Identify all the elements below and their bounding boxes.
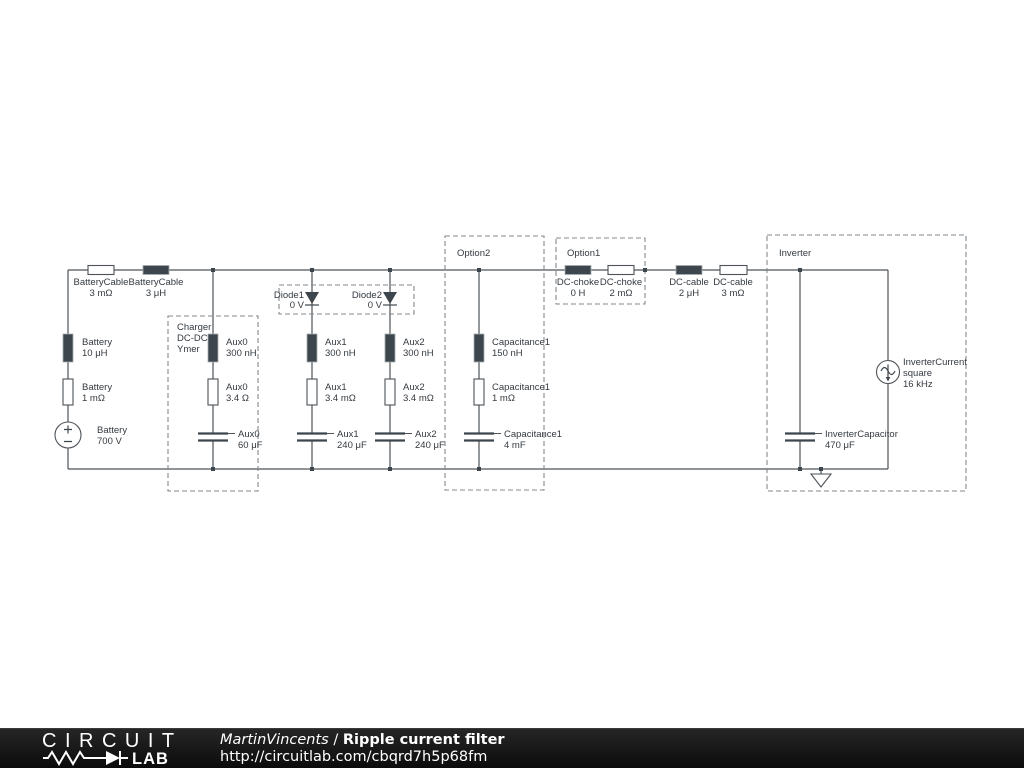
svg-text:3.4 mΩ: 3.4 mΩ: [325, 393, 356, 404]
svg-text:10 μH: 10 μH: [82, 348, 108, 359]
svg-text:300 nH: 300 nH: [325, 348, 356, 359]
svg-text:Aux2: Aux2: [403, 337, 425, 348]
footer-circuit-title: Ripple current filter: [343, 732, 505, 748]
svg-text:Battery: Battery: [97, 425, 127, 436]
svg-text:0 V: 0 V: [290, 300, 305, 311]
diode-symbol[interactable]: [383, 292, 397, 304]
svg-text:BatteryCable: BatteryCable: [74, 277, 129, 288]
inductor-battery[interactable]: Battery 10 μH: [63, 334, 112, 362]
svg-text:16 kHz: 16 kHz: [903, 379, 933, 390]
resistor-battery[interactable]: Battery 1 mΩ: [63, 379, 112, 405]
capacitor-aux2[interactable]: Aux2 240 μF: [375, 429, 445, 451]
svg-text:0 V: 0 V: [368, 300, 383, 311]
svg-text:1 mΩ: 1 mΩ: [492, 393, 515, 404]
resistor-symbol[interactable]: [208, 379, 218, 405]
inductor-aux0[interactable]: Aux0 300 nH: [208, 334, 257, 362]
svg-text:DC-choke: DC-choke: [557, 277, 599, 288]
inductor-symbol[interactable]: [63, 334, 73, 362]
svg-text:DC-choke: DC-choke: [600, 277, 642, 288]
inductor-symbol[interactable]: [676, 266, 702, 275]
wires: [68, 270, 888, 474]
ground-icon[interactable]: [811, 474, 831, 487]
option2-group-label: Option2: [457, 248, 490, 259]
svg-text:Aux1: Aux1: [325, 382, 347, 393]
svg-text:4 mF: 4 mF: [504, 440, 526, 451]
svg-text:3 mΩ: 3 mΩ: [90, 288, 113, 299]
svg-text:Aux0: Aux0: [226, 337, 248, 348]
footer-title-line: MartinVincents / Ripple current filter: [220, 732, 505, 749]
svg-text:3 μH: 3 μH: [146, 288, 166, 299]
resistor-symbol[interactable]: [608, 266, 634, 275]
capacitor-symbol[interactable]: [297, 434, 327, 441]
voltage-source-battery[interactable]: Battery 700 V: [55, 422, 127, 448]
svg-text:InverterCapacitor: InverterCapacitor: [825, 429, 898, 440]
resistor-symbol[interactable]: [474, 379, 484, 405]
capacitor-symbol[interactable]: [375, 434, 405, 441]
option1-group-label: Option1: [567, 248, 600, 259]
capacitor-symbol[interactable]: [785, 434, 815, 441]
svg-text:BatteryCable: BatteryCable: [129, 277, 184, 288]
svg-text:470 μF: 470 μF: [825, 440, 855, 451]
inductor-symbol[interactable]: [143, 266, 169, 275]
svg-text:0 H: 0 H: [571, 288, 586, 299]
inductor-symbol[interactable]: [385, 334, 395, 362]
svg-text:Aux2: Aux2: [403, 382, 425, 393]
resistor-symbol[interactable]: [88, 266, 114, 275]
resistor-aux0[interactable]: Aux0 3.4 Ω: [208, 379, 249, 405]
svg-text:Aux1: Aux1: [337, 429, 359, 440]
diode-symbol[interactable]: [305, 292, 319, 304]
svg-text:Capacitance1: Capacitance1: [492, 337, 550, 348]
svg-text:DC-cable: DC-cable: [713, 277, 753, 288]
circuitlab-logo[interactable]: CIRCUIT LAB: [42, 731, 192, 767]
svg-text:InverterCurrent: InverterCurrent: [903, 357, 967, 368]
svg-text:240 μF: 240 μF: [415, 440, 445, 451]
svg-text:3 mΩ: 3 mΩ: [722, 288, 745, 299]
logo-text-lab: LAB: [132, 750, 169, 767]
capacitor-inverter[interactable]: InverterCapacitor 470 μF: [785, 429, 898, 451]
ground-symbol[interactable]: [811, 474, 831, 487]
resistor-symbol[interactable]: [307, 379, 317, 405]
svg-text:2 μH: 2 μH: [679, 288, 699, 299]
svg-text:Battery: Battery: [82, 382, 112, 393]
capacitor-symbol[interactable]: [198, 434, 228, 441]
capacitor-aux0[interactable]: Aux0 60 μF: [198, 429, 263, 451]
logo-text-circuit: CIRCUIT: [42, 731, 183, 752]
resistor-aux1[interactable]: Aux1 3.4 mΩ: [307, 379, 356, 405]
inductor-symbol[interactable]: [307, 334, 317, 362]
circuit-schematic: Charger DC-DC Ymer Option2 Option1 Inver…: [0, 0, 1024, 728]
capacitor-aux1[interactable]: Aux1 240 μF: [297, 429, 367, 451]
footer-url[interactable]: http://circuitlab.com/cbqrd7h5p68fm: [220, 749, 505, 766]
svg-text:Aux0: Aux0: [238, 429, 260, 440]
svg-text:Capacitance1: Capacitance1: [504, 429, 562, 440]
svg-text:square: square: [903, 368, 932, 379]
svg-text:700 V: 700 V: [97, 436, 122, 447]
svg-text:1 mΩ: 1 mΩ: [82, 393, 105, 404]
svg-text:Aux1: Aux1: [325, 337, 347, 348]
svg-text:Ymer: Ymer: [177, 344, 200, 355]
resistor-symbol[interactable]: [720, 266, 747, 275]
current-source-inverter[interactable]: InverterCurrent square 16 kHz: [877, 357, 968, 390]
inductor-symbol[interactable]: [474, 334, 484, 362]
svg-text:Aux0: Aux0: [226, 382, 248, 393]
svg-text:2 mΩ: 2 mΩ: [610, 288, 633, 299]
inductor-capacitance1[interactable]: Capacitance1 150 nH: [474, 334, 550, 362]
resistor-aux2[interactable]: Aux2 3.4 mΩ: [385, 379, 434, 405]
svg-text:Aux2: Aux2: [415, 429, 437, 440]
svg-text:3.4 mΩ: 3.4 mΩ: [403, 393, 434, 404]
svg-text:150 nH: 150 nH: [492, 348, 523, 359]
svg-text:Capacitance1: Capacitance1: [492, 382, 550, 393]
svg-text:3.4 Ω: 3.4 Ω: [226, 393, 249, 404]
option2-group-box: [445, 236, 544, 490]
svg-text:DC-cable: DC-cable: [669, 277, 709, 288]
svg-text:300 nH: 300 nH: [403, 348, 434, 359]
footer-separator: /: [329, 732, 343, 748]
inductor-aux1[interactable]: Aux1 300 nH: [307, 334, 356, 362]
svg-text:240 μF: 240 μF: [337, 440, 367, 451]
inductor-symbol[interactable]: [565, 266, 591, 275]
resistor-symbol[interactable]: [385, 379, 395, 405]
footer-text-block: MartinVincents / Ripple current filter h…: [220, 732, 505, 766]
footer-bar: CIRCUIT LAB MartinVincents / Ripple curr…: [0, 728, 1024, 768]
resistor-symbol[interactable]: [63, 379, 73, 405]
resistor-capacitance1[interactable]: Capacitance1 1 mΩ: [474, 379, 550, 405]
circuitlab-export-page: Charger DC-DC Ymer Option2 Option1 Inver…: [0, 0, 1024, 768]
capacitor-symbol[interactable]: [464, 434, 494, 441]
svg-text:DC-DC: DC-DC: [177, 333, 208, 344]
logo-resistor-diode-icon: [43, 751, 128, 765]
charger-group-label: Charger: [177, 322, 211, 333]
inverter-group-label: Inverter: [779, 248, 811, 259]
svg-text:60 μF: 60 μF: [238, 440, 263, 451]
inductor-aux2[interactable]: Aux2 300 nH: [385, 334, 434, 362]
svg-text:300 nH: 300 nH: [226, 348, 257, 359]
footer-author: MartinVincents: [220, 732, 329, 748]
svg-text:Battery: Battery: [82, 337, 112, 348]
inductor-symbol[interactable]: [208, 334, 218, 362]
